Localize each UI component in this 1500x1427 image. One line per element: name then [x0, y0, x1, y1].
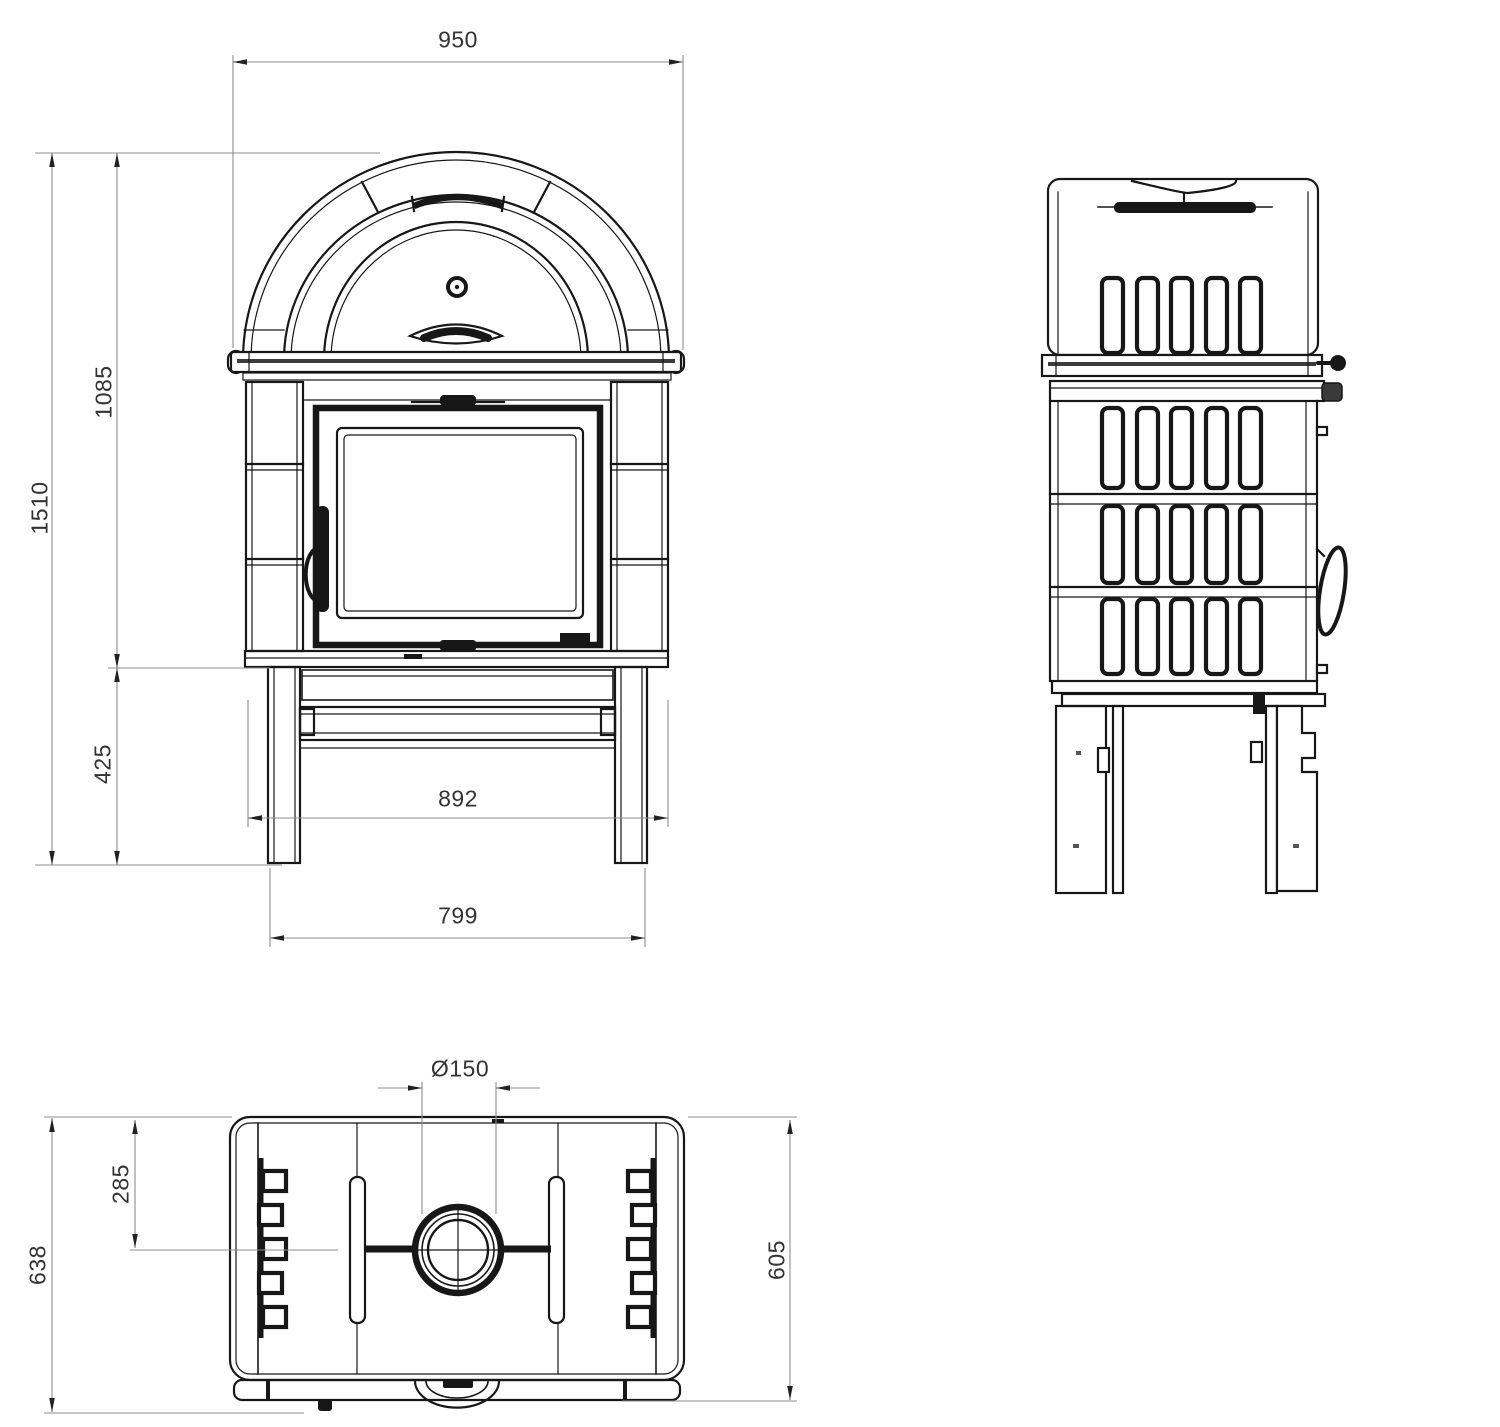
dim-front-leg-span: 799: [438, 903, 478, 930]
dim-top-total-depth: 638: [25, 1245, 52, 1285]
dim-front-total-width: 950: [438, 27, 478, 54]
door-latch: [560, 633, 590, 644]
front-legs: [268, 667, 647, 863]
door-top-tab: [440, 395, 476, 406]
door-handle: [316, 506, 329, 612]
top-view: [230, 1117, 684, 1411]
dim-front-body-height: 1085: [91, 365, 118, 418]
side-body: [1050, 401, 1351, 681]
top-front-band: [234, 1379, 680, 1411]
top-hinge-right: [549, 1177, 564, 1323]
door-glass: [337, 428, 583, 618]
side-mantel-shelf: [1042, 355, 1346, 401]
stove-technical-drawing: 950 1510 1085 425 892 799 Ø150 285 638 6…: [0, 0, 1500, 1427]
dim-top-flue-diameter: Ø150: [431, 1056, 489, 1083]
dim-front-base-height: 425: [90, 744, 117, 784]
top-hinge-left: [350, 1177, 365, 1323]
side-rear-bracket: [1277, 706, 1317, 891]
front-arch-handle: [410, 325, 502, 344]
drawing-canvas: [0, 0, 1500, 1427]
side-view: [1042, 179, 1351, 893]
dim-front-total-height: 1510: [27, 481, 54, 534]
top-corner-knob: [318, 1399, 332, 1411]
front-base: [245, 651, 668, 700]
side-vent-slots: [1102, 278, 1261, 674]
side-base: [1052, 681, 1325, 893]
front-arch-knob: [448, 278, 466, 296]
side-top-handle: [1114, 202, 1256, 213]
dim-top-flue-offset: 285: [108, 1164, 135, 1204]
side-door-handle: [1313, 546, 1350, 637]
front-lower-shelf: [300, 707, 615, 748]
side-damper-knob: [1330, 355, 1346, 371]
dim-front-base-width: 892: [438, 786, 478, 813]
top-flue-collar: [365, 1206, 551, 1294]
door-bottom-tab: [440, 640, 476, 651]
front-fire-door: [303, 395, 611, 651]
dim-top-body-depth: 605: [764, 1240, 791, 1280]
front-view: [228, 152, 684, 863]
top-door-latch: [443, 1379, 473, 1388]
front-mantel-shelf: [228, 351, 684, 380]
